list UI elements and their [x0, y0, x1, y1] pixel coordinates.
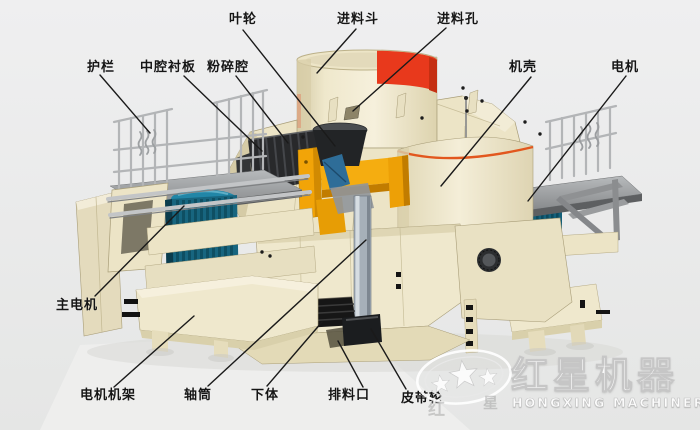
main-motor-frame: [122, 208, 318, 362]
label-feed-hopper: 进料斗: [337, 13, 379, 27]
label-discharge-port: 排料口: [328, 389, 370, 403]
diagram-canvas: 叶轮 进料斗 进料孔 护栏 中腔衬板 粉碎腔 机壳 电机 主电机 电机机架 轴筒…: [0, 0, 700, 430]
label-impeller: 叶轮: [229, 13, 257, 27]
label-feed-hole: 进料孔: [437, 13, 479, 27]
label-motor: 电机: [611, 61, 639, 75]
label-middle-cavity-liner: 中腔衬板: [140, 61, 196, 75]
label-casing: 机壳: [509, 61, 537, 75]
label-lower-body: 下体: [251, 389, 279, 403]
label-guardrail: 护栏: [87, 61, 115, 75]
label-main-motor: 主电机: [56, 299, 98, 313]
label-motor-frame: 电机机架: [80, 389, 136, 403]
label-shaft-tube: 轴筒: [184, 389, 212, 403]
label-belt-pulley: 皮带轮: [401, 392, 443, 406]
label-crushing-cavity: 粉碎腔: [207, 61, 249, 75]
